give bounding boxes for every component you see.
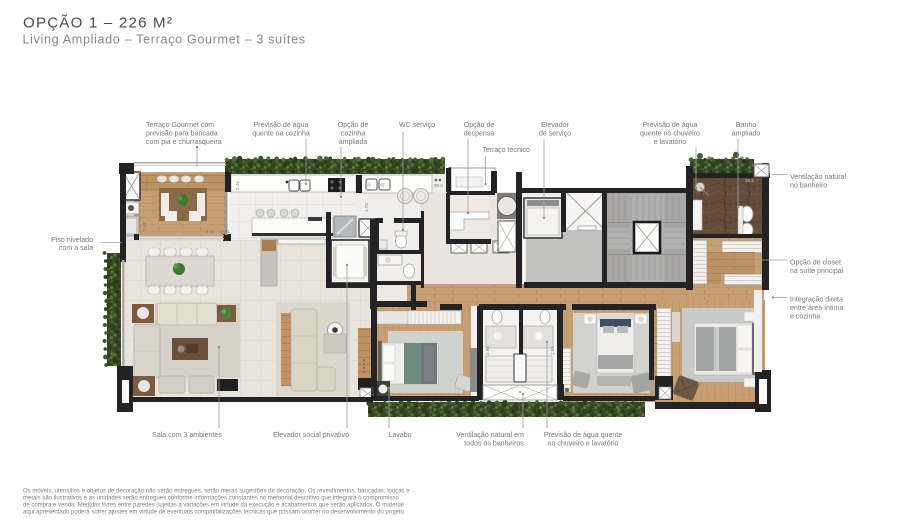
svg-text:Piso nivelado: Piso nivelado <box>51 237 93 244</box>
svg-text:de compra e venda. Medidas liv: de compra e venda. Medidas livres entre … <box>23 503 404 509</box>
svg-text:cozinha: cozinha <box>341 131 365 138</box>
svg-text:de serviço: de serviço <box>539 131 571 138</box>
svg-text:Sala com 3 ambientes: Sala com 3 ambientes <box>152 432 222 439</box>
svg-text:Previsão de água: Previsão de água <box>643 122 698 129</box>
svg-text:previsão para bancada: previsão para bancada <box>146 131 218 138</box>
svg-text:WC serviço: WC serviço <box>399 122 435 129</box>
svg-text:Os móveis, utensílios e objeto: Os móveis, utensílios e objetos de decor… <box>23 489 410 495</box>
svg-text:Terraço técnico: Terraço técnico <box>482 147 530 154</box>
svg-text:quente no chuveiro: quente no chuveiro <box>640 131 700 138</box>
svg-text:2.88: 2.88 <box>550 346 555 355</box>
svg-text:5.51: 5.51 <box>221 229 230 234</box>
svg-text:Terraço Gourmet com: Terraço Gourmet com <box>146 122 214 129</box>
svg-text:OPÇÃO 1 – 226 M²: OPÇÃO 1 – 226 M² <box>23 15 173 32</box>
svg-text:2.88: 2.88 <box>485 346 490 355</box>
svg-text:2.44: 2.44 <box>142 222 147 231</box>
svg-text:ampliada: ampliada <box>339 139 368 146</box>
svg-text:com a sala: com a sala <box>59 245 93 252</box>
svg-text:Ventilação natural em: Ventilação natural em <box>456 432 524 439</box>
svg-text:Elevador: Elevador <box>541 122 569 129</box>
svg-text:Integração direta: Integração direta <box>790 297 843 304</box>
svg-text:entre área íntima: entre área íntima <box>790 305 843 312</box>
svg-text:Lavabo: Lavabo <box>388 432 411 439</box>
svg-text:todos os banheiros: todos os banheiros <box>464 441 524 448</box>
svg-text:ampliado: ampliado <box>732 131 761 138</box>
svg-text:despensa: despensa <box>464 131 495 138</box>
svg-text:Opção de: Opção de <box>464 122 495 129</box>
svg-text:e lavatório: e lavatório <box>654 139 687 146</box>
svg-text:4.70: 4.70 <box>370 387 375 396</box>
svg-text:quente na cozinha: quente na cozinha <box>252 131 310 138</box>
svg-text:Previsão de água: Previsão de água <box>254 122 309 129</box>
svg-text:e cozinha: e cozinha <box>790 314 820 321</box>
svg-text:Living Ampliado – Terraço Gour: Living Ampliado – Terraço Gourmet – 3 su… <box>23 33 306 47</box>
svg-text:aqui apresentado poderá sofrer: aqui apresentado poderá sofrer ajustes e… <box>23 510 406 516</box>
svg-text:Banho: Banho <box>736 122 756 129</box>
svg-text:Ventilação natural: Ventilação natural <box>790 174 846 181</box>
svg-text:90.2: 90.2 <box>434 183 443 188</box>
svg-text:Opção de closet: Opção de closet <box>790 260 841 267</box>
svg-text:na suíte principal: na suíte principal <box>790 268 844 275</box>
svg-text:metais são ilustrativos e as u: metais são ilustrativos e as unidades se… <box>23 496 400 502</box>
svg-text:2.44: 2.44 <box>235 181 240 190</box>
svg-text:Elevador social privativo: Elevador social privativo <box>273 432 349 439</box>
svg-text:1.73: 1.73 <box>364 203 369 212</box>
svg-text:Previsão de água quente: Previsão de água quente <box>544 432 622 439</box>
svg-text:com pia e churrasqueira: com pia e churrasqueira <box>146 139 222 146</box>
svg-text:no chuveiro e lavatório: no chuveiro e lavatório <box>548 441 619 448</box>
svg-text:no banheiro: no banheiro <box>790 183 827 190</box>
svg-text:Opção de: Opção de <box>338 122 369 129</box>
svg-text:4.31: 4.31 <box>206 229 215 234</box>
svg-text:29.2: 29.2 <box>745 178 754 183</box>
